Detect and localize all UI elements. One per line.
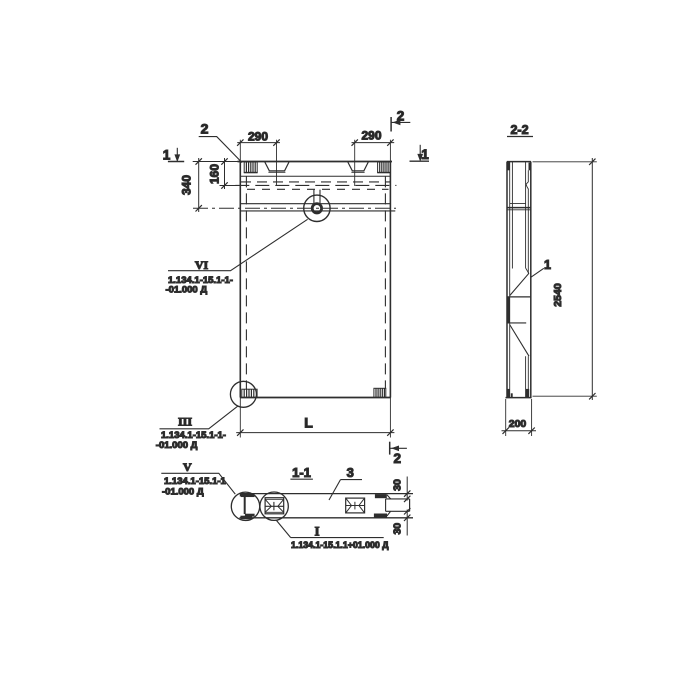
svg-text:200: 200 [509, 418, 527, 430]
svg-text:2-2: 2-2 [510, 123, 528, 137]
svg-text:30: 30 [392, 523, 404, 535]
svg-text:I: I [315, 525, 320, 539]
svg-text:III: III [178, 415, 192, 429]
svg-text:340: 340 [180, 175, 194, 195]
svg-text:30: 30 [392, 479, 404, 491]
svg-text:2: 2 [201, 121, 209, 137]
svg-text:2540: 2540 [552, 283, 564, 307]
svg-text:290: 290 [248, 130, 268, 144]
svg-text:VI: VI [195, 258, 209, 272]
svg-text:1.134.1-15.1.1+01.000 Д: 1.134.1-15.1.1+01.000 Д [291, 540, 389, 550]
svg-text:-01.000 Д: -01.000 Д [156, 440, 198, 451]
svg-text:1: 1 [544, 258, 551, 272]
svg-text:2: 2 [394, 451, 402, 466]
svg-text:V: V [183, 460, 192, 474]
svg-text:160: 160 [208, 164, 222, 184]
svg-text:1: 1 [421, 147, 429, 162]
svg-text:-01.000 Д: -01.000 Д [162, 487, 204, 498]
svg-text:290: 290 [361, 129, 381, 143]
svg-text:1.134.1-15.1-1: 1.134.1-15.1-1 [164, 476, 227, 487]
svg-text:2: 2 [397, 109, 405, 124]
svg-text:1-1: 1-1 [292, 465, 311, 480]
svg-text:-01.000 Д: -01.000 Д [166, 285, 208, 296]
svg-text:3: 3 [347, 465, 354, 480]
svg-text:L: L [304, 415, 313, 431]
svg-text:1: 1 [163, 148, 171, 163]
